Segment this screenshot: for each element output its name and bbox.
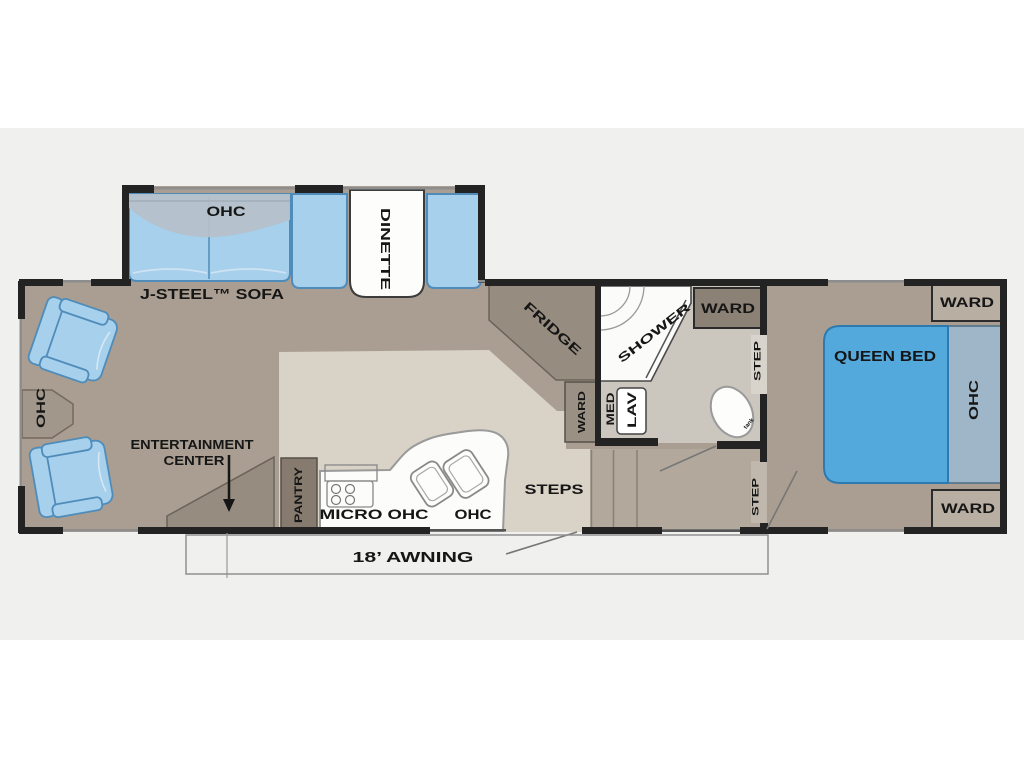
- svg-text:LAV: LAV: [625, 392, 639, 428]
- svg-text:WARD: WARD: [941, 501, 995, 516]
- svg-text:OHC: OHC: [207, 203, 246, 219]
- svg-text:STEP: STEP: [751, 477, 762, 516]
- svg-text:STEPS: STEPS: [525, 481, 584, 497]
- svg-text:OHC: OHC: [967, 380, 981, 420]
- svg-text:18’ AWNING: 18’ AWNING: [353, 549, 474, 566]
- svg-text:J-STEEL™ SOFA: J-STEEL™ SOFA: [140, 287, 285, 303]
- svg-text:OHC: OHC: [455, 506, 492, 522]
- svg-text:QUEEN BED: QUEEN BED: [834, 349, 936, 365]
- svg-text:WARD: WARD: [701, 301, 755, 316]
- svg-text:OHC: OHC: [388, 506, 429, 522]
- svg-text:PANTRY: PANTRY: [293, 466, 305, 523]
- svg-text:OHC: OHC: [36, 388, 48, 428]
- svg-text:ENTERTAINMENT: ENTERTAINMENT: [131, 437, 254, 452]
- svg-text:MICRO: MICRO: [320, 506, 383, 522]
- svg-text:WARD: WARD: [940, 295, 994, 310]
- svg-text:DINETTE: DINETTE: [378, 208, 393, 290]
- svg-text:WARD: WARD: [576, 390, 588, 433]
- svg-text:MED: MED: [605, 392, 617, 425]
- svg-text:STEP: STEP: [753, 340, 764, 381]
- svg-text:CENTER: CENTER: [164, 453, 226, 468]
